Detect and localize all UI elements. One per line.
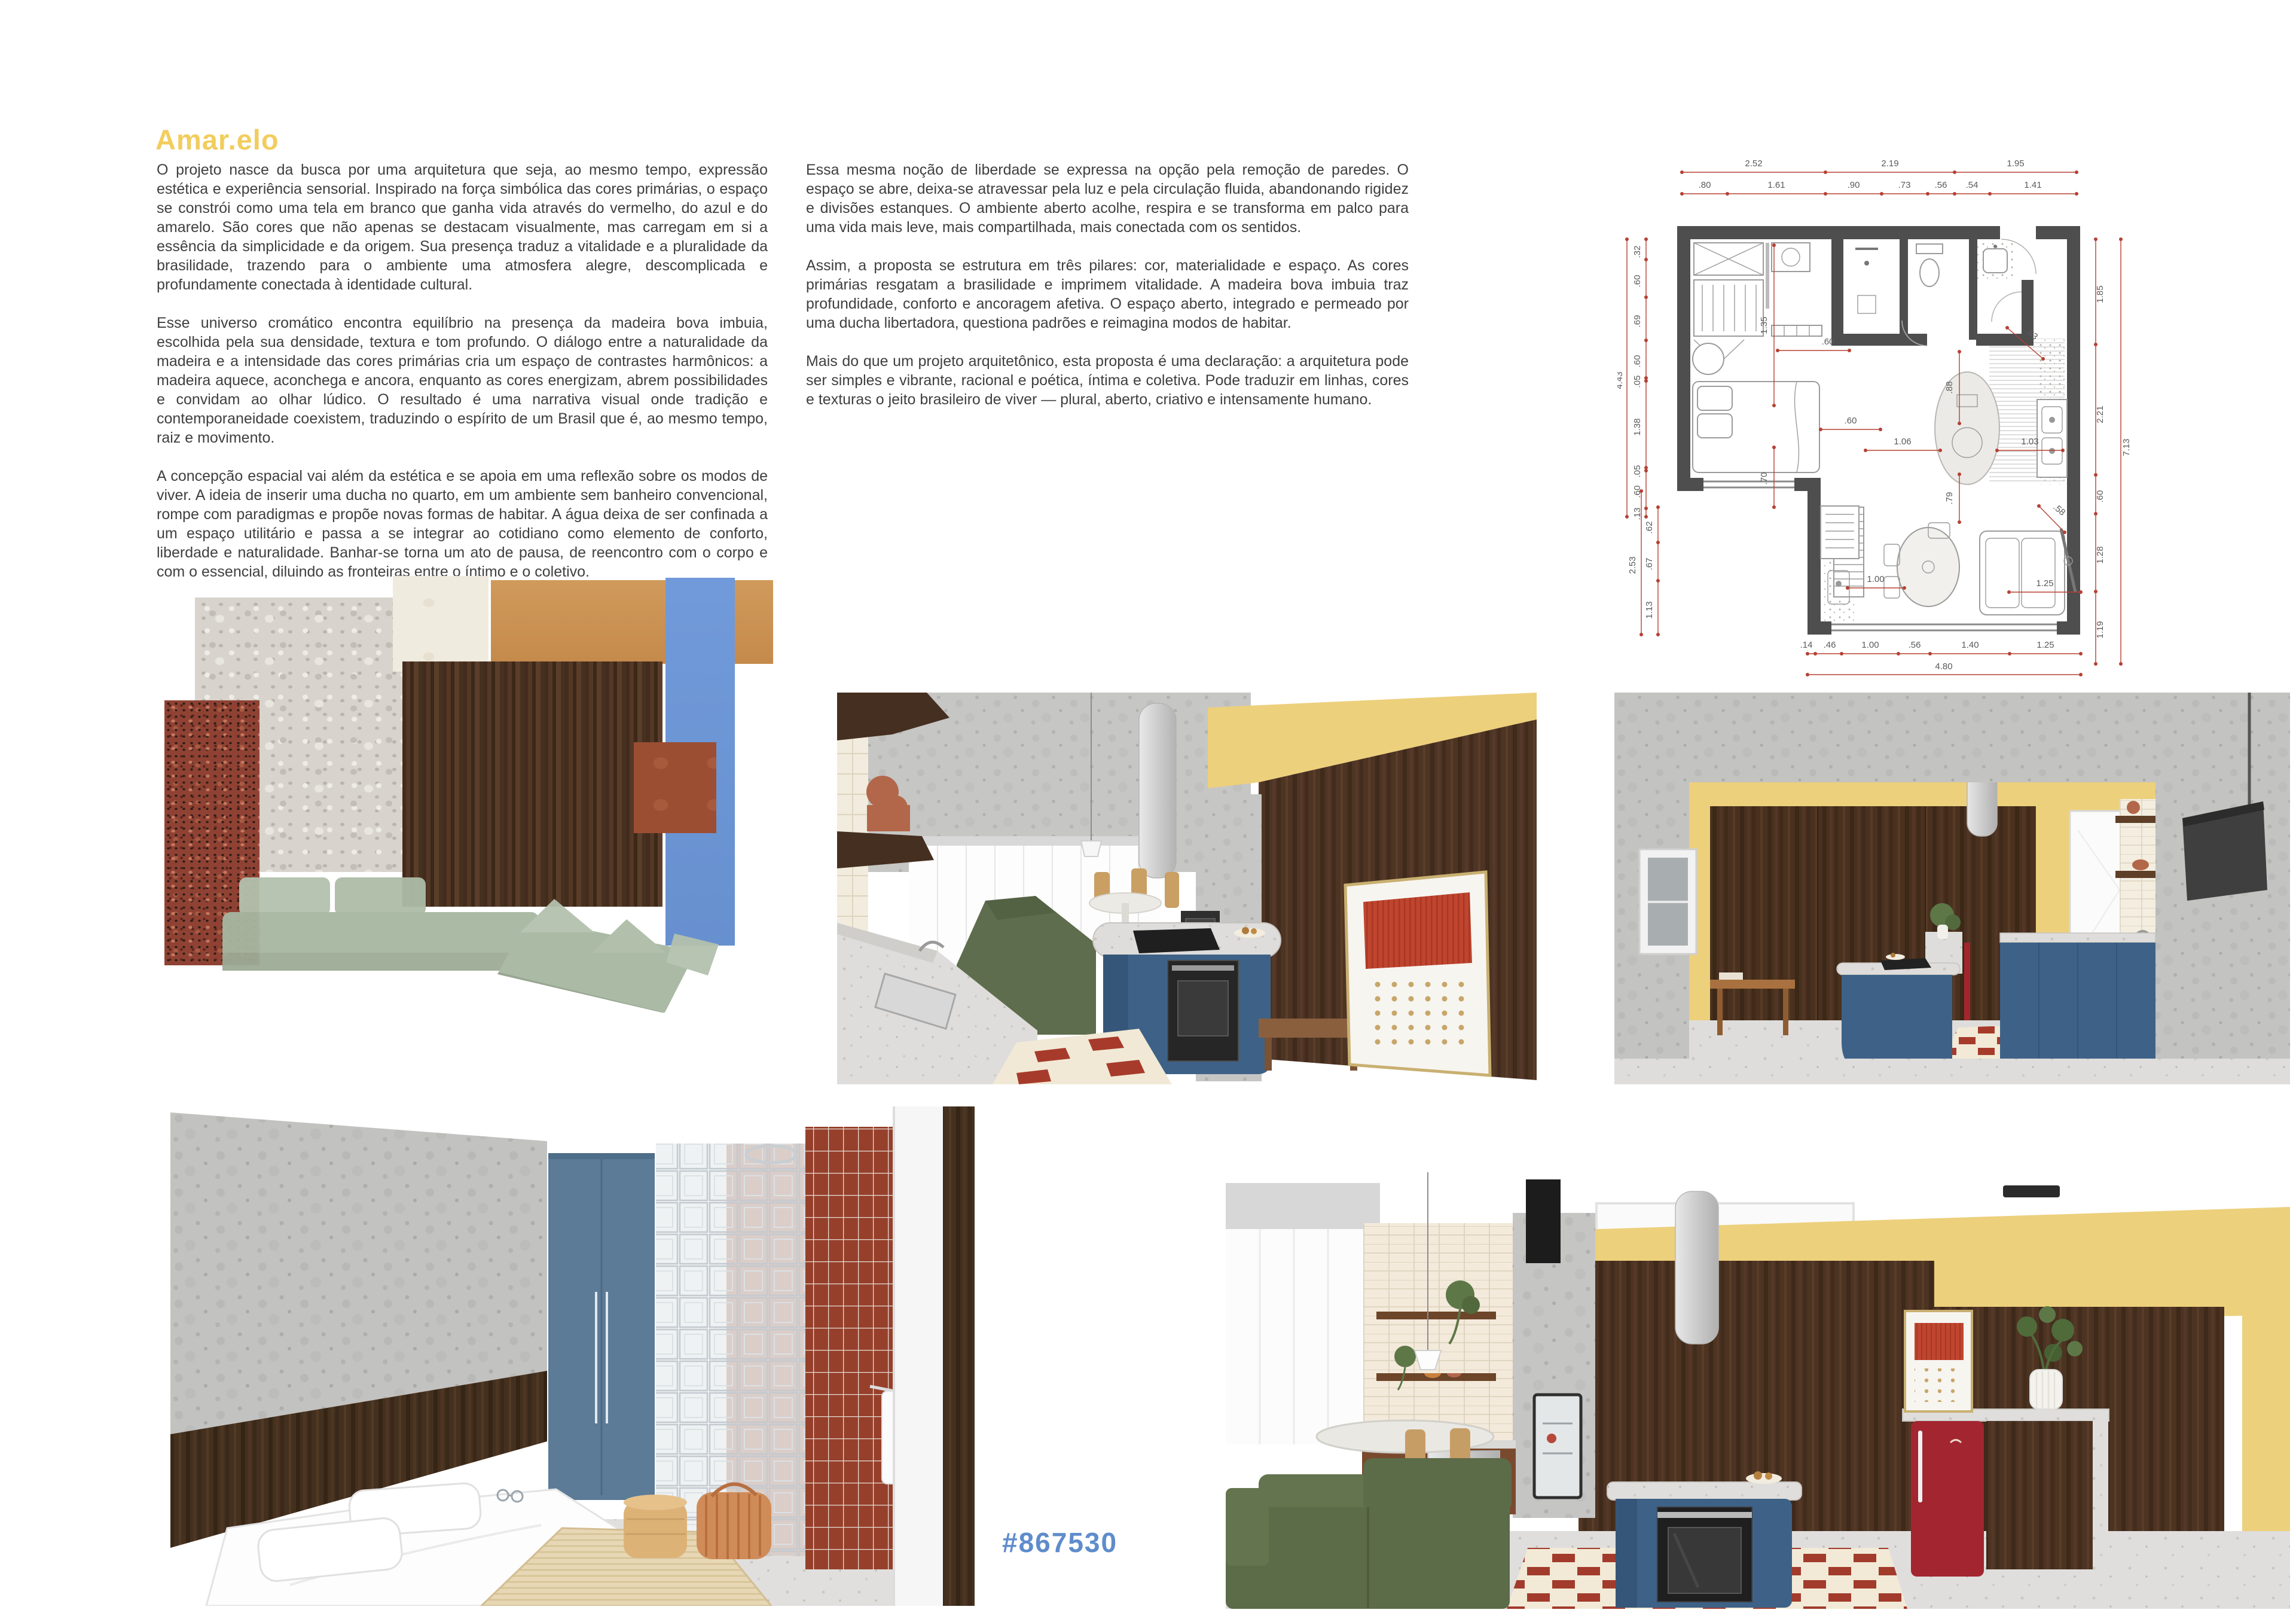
svg-text:.54: .54 [1966, 180, 1979, 190]
white-cabinets [1226, 1183, 1380, 1444]
intro-paragraph: O projeto nasce da busca por uma arquite… [157, 160, 768, 294]
swatch-offwhite-tile [393, 576, 488, 672]
svg-text:.56: .56 [1909, 640, 1921, 650]
material-collage [157, 576, 784, 1048]
svg-text:.05: .05 [1632, 376, 1642, 388]
svg-text:1.25: 1.25 [2036, 578, 2053, 589]
svg-text:.56: .56 [1935, 180, 1947, 190]
svg-text:.79: .79 [1944, 492, 1955, 505]
svg-text:.67: .67 [1644, 558, 1654, 571]
page-title: Amar.elo [155, 123, 279, 156]
render-kitchen-framed [1614, 693, 2290, 1084]
svg-text:1.95: 1.95 [2007, 158, 2024, 169]
svg-text:.62: .62 [1644, 522, 1654, 534]
recessed-cabinet [1534, 1395, 1581, 1498]
svg-text:7.13: 7.13 [2121, 438, 2132, 456]
svg-text:.32: .32 [1632, 246, 1642, 258]
svg-text:1.00: 1.00 [1861, 640, 1879, 650]
intro-right-column: Essa mesma noção de liberdade se express… [806, 160, 1409, 428]
window [1639, 849, 1696, 954]
svg-text:.46: .46 [1824, 640, 1836, 650]
intro-paragraph: Esse universo cromático encontra equilíb… [157, 313, 768, 447]
presentation-board: { "header": { "title": "Amar.elo" }, "fo… [0, 0, 2296, 1622]
svg-text:1.28: 1.28 [2095, 546, 2105, 563]
svg-text:1.40: 1.40 [1961, 640, 1979, 650]
black-flue [1526, 1179, 1561, 1263]
framed-artwork [1345, 872, 1490, 1075]
svg-text:.05: .05 [1632, 465, 1642, 478]
blue-wardrobe [548, 1153, 655, 1500]
svg-text:.88: .88 [1944, 382, 1955, 394]
svg-text:.70: .70 [1759, 472, 1769, 485]
svg-text:.69: .69 [1632, 315, 1642, 328]
svg-text:2.53: 2.53 [1628, 556, 1638, 574]
svg-text:.60: .60 [2095, 490, 2105, 503]
fridge-cabinet-run [1903, 1409, 2109, 1577]
svg-text:1.38: 1.38 [1632, 418, 1642, 435]
svg-text:.80: .80 [1699, 180, 1711, 190]
intro-paragraph: A concepção espacial vai além da estétic… [157, 467, 768, 581]
render-bedroom-shower [170, 1106, 975, 1606]
svg-text:.60: .60 [1632, 355, 1642, 368]
svg-text:.60: .60 [1822, 337, 1834, 347]
intro-paragraph: Essa mesma noção de liberdade se express… [806, 160, 1409, 237]
svg-text:2.52: 2.52 [1745, 158, 1762, 169]
svg-text:2.19: 2.19 [1881, 158, 1898, 169]
svg-text:1.06: 1.06 [1894, 437, 1911, 447]
svg-text:.73: .73 [1898, 180, 1911, 190]
svg-text:.14: .14 [1800, 640, 1813, 650]
svg-text:1.03: 1.03 [2021, 437, 2038, 447]
swatch-terracotta-leather [634, 742, 716, 833]
kitchen-island [1607, 1471, 1802, 1608]
svg-text:1.61: 1.61 [1767, 180, 1785, 190]
tile-shelves-nook [2115, 799, 2155, 949]
range-hood [1675, 1191, 1718, 1344]
svg-text:.60: .60 [1632, 275, 1642, 288]
floor-plan: 2.52 2.19 1.95 .80 1.61 .90 .73 .56 .54 … [1617, 148, 2155, 693]
svg-text:1.85: 1.85 [2095, 285, 2105, 303]
door-frame [894, 1106, 975, 1606]
svg-text:1.13: 1.13 [1644, 601, 1654, 618]
svg-text:4.80: 4.80 [1935, 661, 1952, 672]
ceiling-vent [2003, 1185, 2060, 1197]
svg-text:1.35: 1.35 [1759, 316, 1769, 334]
svg-text:4.43: 4.43 [1617, 371, 1625, 389]
svg-text:1.19: 1.19 [2095, 621, 2105, 638]
svg-text:2.21: 2.21 [2095, 405, 2105, 423]
svg-text:1.25: 1.25 [2037, 640, 2054, 650]
kitchen-island [1837, 953, 1960, 1074]
range-hood [1139, 703, 1176, 878]
project-hashtag: #867530 [1002, 1526, 1118, 1559]
tile-backsplash-shelves [1363, 1223, 1516, 1441]
intro-paragraph: Assim, a proposta se estrutura em três p… [806, 256, 1409, 333]
intro-left-column: O projeto nasce da busca por uma arquite… [157, 160, 768, 600]
render-kitchen-elevation [1226, 1172, 2290, 1609]
sage-sectional-sofa [222, 863, 719, 1013]
green-sofa [1226, 1458, 1512, 1609]
framed-artwork [1905, 1311, 1972, 1411]
intro-paragraph: Mais do que um projeto arquitetônico, es… [806, 352, 1409, 409]
render-kitchen-perspective [837, 693, 1537, 1084]
svg-text:.60: .60 [1845, 416, 1857, 426]
svg-text:1.41: 1.41 [2024, 180, 2041, 190]
svg-text:.90: .90 [1848, 180, 1860, 190]
svg-text:1.00: 1.00 [1867, 574, 1884, 584]
